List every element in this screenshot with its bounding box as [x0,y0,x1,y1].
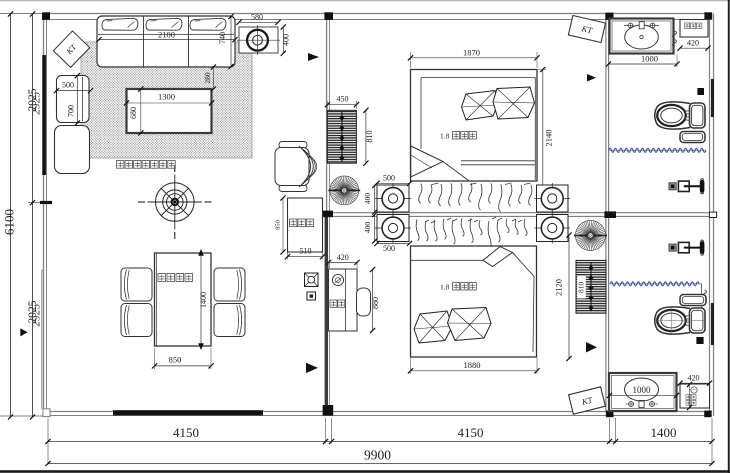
svg-text:400: 400 [363,222,372,234]
svg-text:1000: 1000 [641,54,658,64]
svg-text:450: 450 [337,94,349,103]
svg-text:400: 400 [363,193,372,205]
svg-text:500: 500 [383,174,395,183]
svg-text:2100: 2100 [158,30,175,40]
svg-text:420: 420 [688,374,700,383]
svg-text:2925: 2925 [31,92,43,115]
svg-text:810: 810 [576,282,585,294]
svg-text:280: 280 [203,72,212,84]
svg-text:1400: 1400 [651,425,677,440]
svg-text:1870: 1870 [463,47,480,57]
svg-text:1.8: 1.8 [440,282,450,291]
svg-text:4150: 4150 [458,425,484,440]
svg-text:2120: 2120 [554,279,564,296]
svg-text:4150: 4150 [173,425,199,440]
svg-text:850: 850 [275,220,282,230]
svg-text:1000: 1000 [633,385,652,395]
svg-text:810: 810 [365,131,374,143]
svg-text:1400: 1400 [199,292,208,308]
svg-text:420: 420 [337,253,349,262]
svg-text:420: 420 [687,38,699,47]
svg-text:1.8: 1.8 [440,131,450,140]
svg-text:9900: 9900 [364,447,391,462]
svg-text:2925: 2925 [31,304,43,327]
svg-text:700: 700 [67,105,76,117]
svg-text:510: 510 [300,246,312,255]
svg-text:1300: 1300 [158,92,175,102]
svg-text:6100: 6100 [2,209,17,235]
svg-text:500: 500 [62,81,74,90]
svg-text:1880: 1880 [464,360,481,370]
svg-text:880: 880 [371,297,380,309]
svg-text:850: 850 [169,355,182,365]
svg-text:2140: 2140 [543,130,553,147]
svg-text:500: 500 [383,244,395,253]
svg-text:740: 740 [218,32,227,44]
svg-text:580: 580 [251,13,263,22]
svg-text:680: 680 [129,107,138,119]
svg-text:400: 400 [282,34,291,46]
